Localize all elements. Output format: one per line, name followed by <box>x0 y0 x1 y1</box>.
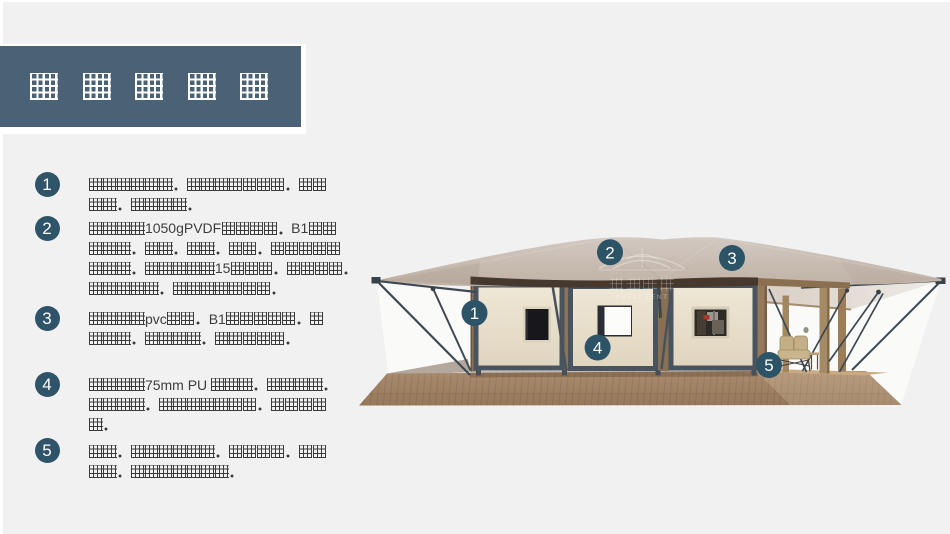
svg-text:5: 5 <box>764 356 773 375</box>
svg-text:3: 3 <box>727 249 736 268</box>
svg-text:4: 4 <box>593 339 602 358</box>
svg-text:1: 1 <box>470 304 479 323</box>
svg-text:2: 2 <box>605 243 614 262</box>
svg-text:XUELI TENT: XUELI TENT <box>615 294 668 301</box>
